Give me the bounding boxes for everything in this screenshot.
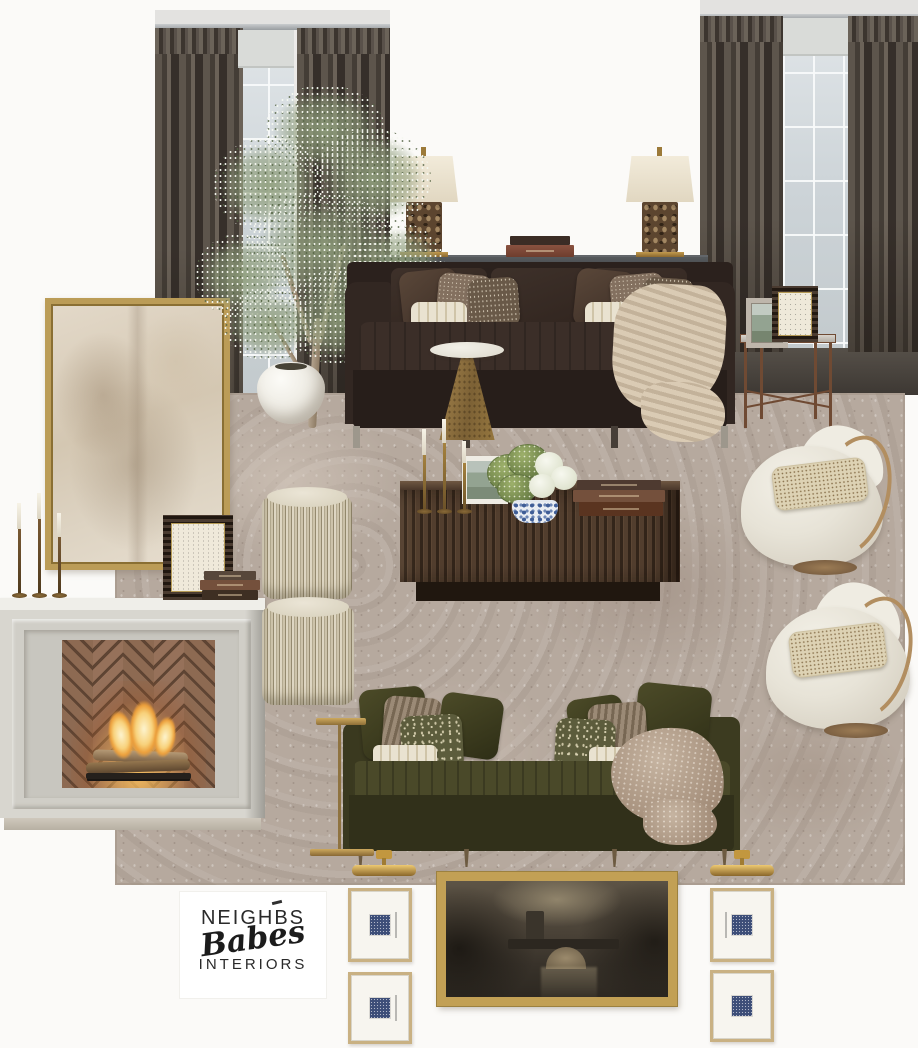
sofa-leg — [353, 426, 360, 448]
sofa-leg — [611, 849, 618, 867]
bridge-painting — [437, 872, 677, 1006]
ottoman-top — [267, 597, 349, 617]
swivel-base — [793, 560, 857, 575]
mood-board: NEIGHBS Babes INTERIORS — [0, 0, 918, 1048]
taper-candle — [442, 419, 446, 443]
mat-accent-line — [395, 912, 397, 938]
roller-shade — [238, 30, 294, 68]
table-leg — [814, 343, 817, 419]
taper-candlesticks — [415, 425, 477, 517]
marble-lamp-base — [642, 202, 678, 252]
curtain-panel-right — [848, 16, 918, 352]
bronze-side-table — [740, 334, 836, 430]
firebox — [62, 640, 215, 788]
mat-accent-line — [725, 912, 727, 938]
swivel-chair-top — [741, 426, 893, 578]
hydrangea-arrangement — [487, 444, 579, 506]
light-bar — [710, 865, 774, 876]
olive-sofa — [343, 683, 740, 868]
mantel-candlesticks — [12, 493, 72, 600]
water-reflection — [541, 967, 597, 999]
candlestick — [443, 443, 446, 511]
brass-c-table — [310, 718, 376, 858]
candlestick — [423, 455, 426, 511]
taper-candle — [57, 513, 61, 537]
book-spine — [579, 502, 663, 516]
roller-shade — [783, 18, 848, 56]
picture-light-left — [352, 850, 416, 878]
book-spine — [200, 580, 260, 590]
book-spine — [510, 236, 570, 245]
sofa-leg — [721, 426, 728, 448]
stone-tabletop — [430, 342, 504, 358]
ceiling-strip — [700, 0, 918, 14]
fringe-ottoman-bottom — [262, 597, 354, 705]
table-leg — [744, 343, 747, 428]
swivel-chair-bottom — [764, 583, 918, 741]
fringe-ottoman-top — [262, 487, 352, 599]
sofa-leg — [611, 426, 618, 448]
lamp-shade — [626, 156, 694, 202]
fire-grate — [86, 773, 190, 779]
horn-frame-botanical — [772, 286, 818, 342]
light-bar — [352, 865, 416, 876]
candlestick — [38, 517, 41, 595]
ceiling-strip — [155, 10, 390, 24]
brand-logo: NEIGHBS Babes INTERIORS — [180, 892, 326, 998]
sheepskin-throw — [643, 799, 717, 845]
white-hydrangea — [529, 474, 555, 498]
botanical-print — [778, 292, 812, 336]
navy-mini-print — [370, 915, 390, 935]
brass-lamp-plinth — [636, 252, 684, 257]
fringe-skirt — [262, 497, 352, 599]
hearth — [4, 818, 261, 830]
console-books — [506, 236, 574, 257]
foliage — [223, 289, 315, 361]
book-spine — [204, 571, 256, 580]
navy-mini-print — [370, 998, 390, 1018]
mantel-books — [200, 571, 260, 600]
taper-candle — [37, 493, 41, 519]
candlestick — [463, 463, 466, 511]
book-spine — [577, 480, 661, 490]
logo-accent-mark — [272, 900, 282, 905]
gallery-frame-2 — [348, 972, 412, 1044]
navy-mini-print — [732, 915, 752, 935]
sideboard-books — [573, 480, 665, 516]
book-spine — [573, 490, 665, 502]
lamp-finial — [657, 147, 662, 156]
gallery-frame-3 — [710, 888, 774, 962]
landscape-art — [446, 881, 668, 997]
gallery-frame-4 — [710, 970, 774, 1042]
table-top-bar — [316, 718, 366, 725]
taper-candle — [17, 503, 21, 529]
candlestick — [58, 535, 61, 595]
table-lamp-right — [624, 156, 696, 257]
fringe-skirt — [262, 607, 354, 705]
sofa-leg — [463, 849, 470, 867]
ottoman-top — [267, 487, 347, 507]
picture-light-right — [710, 850, 774, 878]
mat-accent-line — [395, 995, 397, 1021]
book-spine — [202, 590, 258, 600]
bridge-arch — [546, 947, 586, 969]
book-spine — [506, 245, 574, 257]
navy-mini-print — [732, 996, 752, 1016]
table-pole — [338, 724, 341, 850]
gallery-frame-1 — [348, 888, 412, 962]
knit-throw — [641, 382, 725, 442]
taper-candle — [422, 429, 426, 455]
swivel-base — [824, 723, 888, 738]
blue-white-vase — [512, 500, 558, 523]
sideboard-plinth — [416, 582, 660, 601]
table-leg — [829, 343, 832, 428]
table-leg — [760, 343, 763, 419]
espresso-sofa — [345, 260, 735, 450]
fireplace — [0, 598, 265, 830]
candlestick — [18, 527, 21, 595]
taper-candle — [462, 441, 466, 463]
